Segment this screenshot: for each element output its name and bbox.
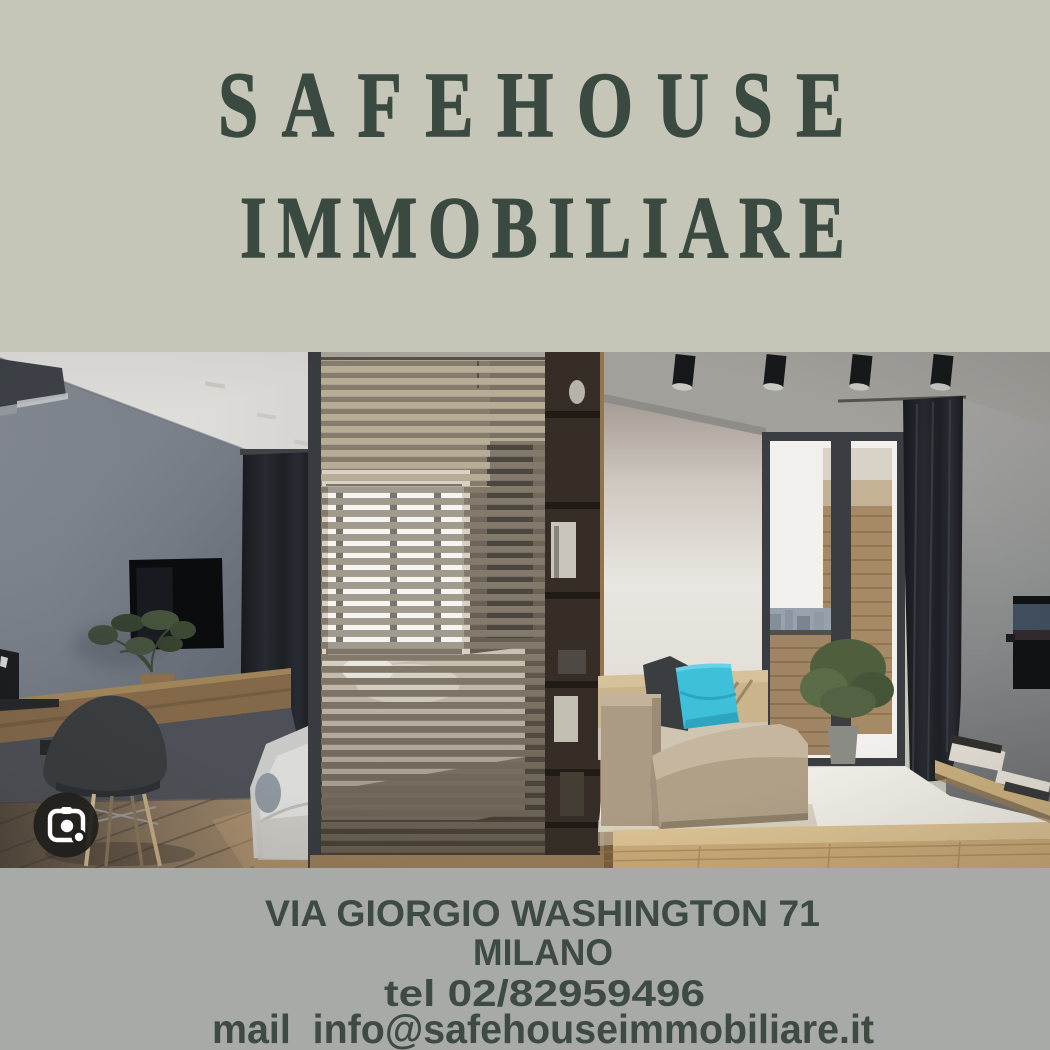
svg-text:IMMOBILIARE: IMMOBILIARE (240, 180, 855, 277)
svg-text:SAFEHOUSE: SAFEHOUSE (218, 55, 868, 158)
svg-text:VIA GIORGIO WASHINGTON 71: VIA GIORGIO WASHINGTON 71 (265, 893, 820, 934)
svg-text:mail info@safehouseimmobiliar: mail info@safehouseimmobiliare.it (212, 1006, 874, 1050)
svg-text:MILANO: MILANO (473, 932, 613, 973)
